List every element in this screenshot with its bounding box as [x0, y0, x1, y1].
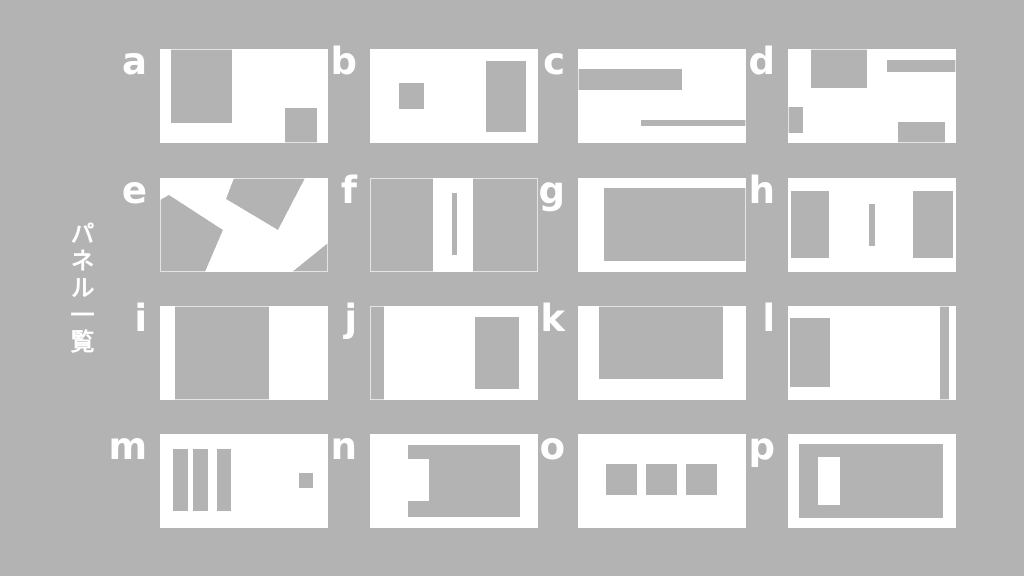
panel-h	[788, 178, 956, 272]
panel-i	[160, 306, 328, 400]
panel-label-b: b	[315, 42, 357, 82]
panel-m-layout	[160, 434, 328, 528]
page-title-vertical: パネル一覧	[68, 221, 92, 356]
panel-i-layout	[160, 306, 328, 400]
panel-shape	[788, 107, 803, 133]
panel-label-i: i	[105, 299, 147, 339]
panel-o	[578, 434, 746, 528]
panel-k	[578, 306, 746, 400]
panel-label-d: d	[733, 42, 775, 82]
panel-shape	[408, 445, 520, 459]
panel-b	[370, 49, 538, 143]
panel-c-layout	[578, 49, 746, 143]
panel-label-o: o	[523, 427, 565, 467]
panel-label-a: a	[105, 42, 147, 82]
panel-label-g: g	[523, 171, 565, 211]
panel-p	[788, 434, 956, 528]
panel-a-layout	[160, 49, 328, 143]
panel-shape	[913, 191, 953, 258]
panel-k-layout	[578, 306, 746, 400]
panel-list-sheet: パネル一覧 abcdefghijklmnop	[0, 0, 1024, 576]
panel-f	[370, 178, 538, 272]
panel-label-k: k	[523, 299, 565, 339]
panel-b-layout	[370, 49, 538, 143]
panel-label-p: p	[733, 427, 775, 467]
panel-d	[788, 49, 956, 143]
panel-j	[370, 306, 538, 400]
panel-m	[160, 434, 328, 528]
panel-shape	[646, 464, 677, 495]
panel-shape	[486, 61, 526, 132]
panel-shape	[578, 69, 682, 90]
panel-label-m: m	[105, 427, 147, 467]
panel-shape	[292, 243, 328, 272]
panel-label-j: j	[315, 299, 357, 339]
panel-g	[578, 178, 746, 272]
panel-p-layout	[788, 434, 956, 528]
panel-shape	[171, 49, 232, 123]
panel-o-layout	[578, 434, 746, 528]
panel-l-layout	[788, 306, 956, 400]
panel-shape	[686, 464, 717, 495]
panel-a	[160, 49, 328, 143]
panel-j-layout	[370, 306, 538, 400]
panel-shape	[604, 188, 746, 261]
panel-shape	[452, 193, 457, 255]
panel-label-e: e	[105, 171, 147, 211]
panel-n	[370, 434, 538, 528]
panel-l	[788, 306, 956, 400]
panel-shape	[217, 449, 231, 511]
panel-shape	[160, 195, 223, 272]
panel-shape	[641, 120, 746, 126]
panel-shape	[811, 49, 867, 88]
panel-shape	[869, 204, 875, 246]
panel-shape	[175, 306, 269, 400]
panel-e-layout	[160, 178, 328, 272]
panel-shape	[791, 191, 829, 258]
panel-label-f: f	[315, 171, 357, 211]
panel-label-c: c	[523, 42, 565, 82]
panel-c	[578, 49, 746, 143]
panel-label-l: l	[733, 299, 775, 339]
panel-n-layout	[370, 434, 538, 528]
panel-e	[160, 178, 328, 272]
panel-shape	[193, 449, 208, 511]
panel-shape	[887, 60, 956, 72]
panel-shape	[790, 318, 830, 387]
panel-shape	[173, 449, 188, 511]
panel-shape	[370, 306, 384, 400]
panel-shape	[299, 473, 313, 488]
panel-shape	[898, 122, 945, 143]
panel-shape	[599, 306, 723, 379]
panel-shape	[940, 306, 949, 400]
panel-shape	[370, 178, 433, 272]
panel-d-layout	[788, 49, 956, 143]
panel-shape	[226, 178, 305, 230]
panel-shape	[408, 501, 520, 517]
panel-label-h: h	[733, 171, 775, 211]
panel-f-layout	[370, 178, 538, 272]
panel-shape	[399, 83, 424, 109]
panel-shape	[818, 457, 840, 505]
panel-g-layout	[578, 178, 746, 272]
panel-label-n: n	[315, 427, 357, 467]
panel-h-layout	[788, 178, 956, 272]
panel-shape	[606, 464, 637, 495]
panel-shape	[429, 459, 520, 501]
panel-shape	[475, 317, 519, 389]
panel-shape	[285, 108, 317, 143]
